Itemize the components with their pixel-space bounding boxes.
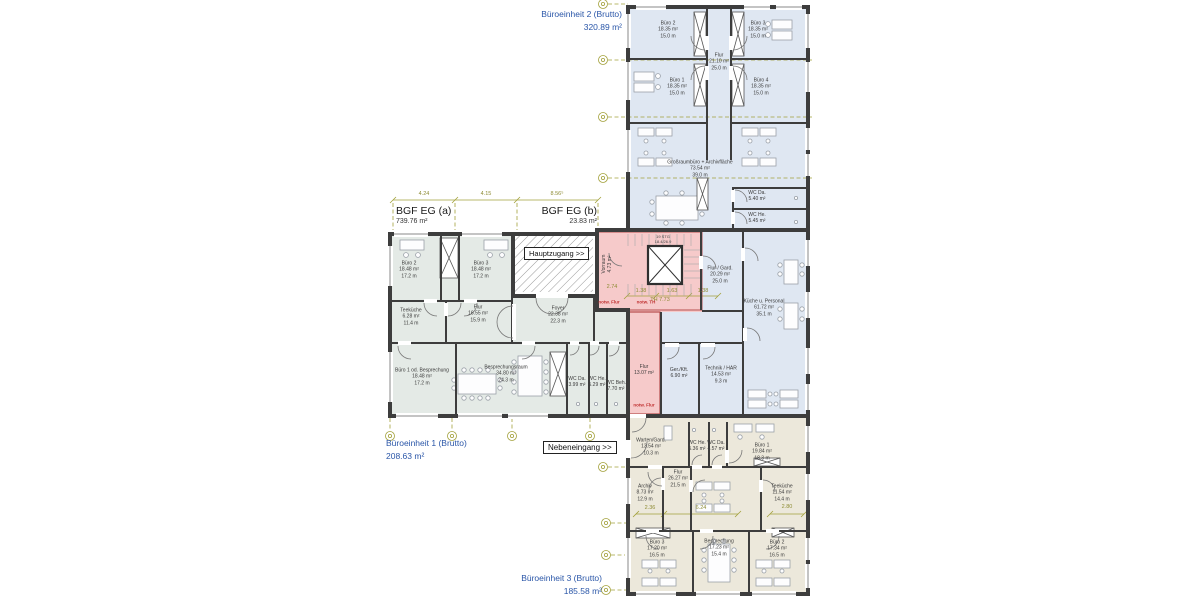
escape-route-label: notw. Flur bbox=[633, 403, 654, 408]
room-label: Flur26.27 m²21.5 m bbox=[668, 470, 688, 489]
dimension-label: 1.38 bbox=[698, 288, 709, 294]
entrance-hatch bbox=[515, 236, 593, 292]
room-label: WC He.5.36 m² bbox=[688, 440, 706, 453]
bgf-eg-a-label: BGF EG (a) 739.76 m² bbox=[396, 205, 451, 226]
room-label: WC Beh.7.70 m² bbox=[606, 380, 626, 393]
room-label: Büro 318.35 m²15.0 m bbox=[748, 21, 768, 40]
room-label: Büro 317.20 m²16.5 m bbox=[647, 540, 667, 559]
room-label: Teeküche6.28 m²11.4 m bbox=[400, 308, 421, 327]
stair-count-note: 19 STG 18.4/26.9 bbox=[655, 235, 672, 245]
room-label: Flur16.55 m²15.9 m bbox=[468, 305, 488, 324]
floor-plan-page: { "drawing": { "type": "architectural-fl… bbox=[0, 0, 1200, 600]
room-label: Büro 1 od. Besprechung18.48 m²17.2 m bbox=[395, 368, 449, 387]
dimension-label: 2.74 bbox=[607, 284, 618, 290]
room-label: Archiv8.73 m²12.9 m bbox=[637, 484, 654, 503]
room-label: Büro 119.84 m²18.3 m bbox=[752, 443, 772, 462]
unit2-label: Büroeinheit 2 (Brutto) 320.89 m² bbox=[541, 8, 622, 34]
room-label: Großraumbüro + Archivfläche73.54 m²39.0 … bbox=[667, 160, 732, 179]
room-label: WC Da.5.40 m² bbox=[748, 190, 766, 203]
room-label: Büro 218.48 m²17.2 m bbox=[399, 261, 419, 280]
room-label: Flur / Gard.20.29 m²25.0 m bbox=[707, 266, 732, 285]
dimension-label: 1.38 bbox=[636, 288, 647, 294]
room-label: Büro 418.35 m²15.0 m bbox=[751, 78, 771, 97]
dimension-label: 6.24 bbox=[696, 505, 707, 511]
escape-route-label: notw. TH bbox=[637, 300, 656, 305]
unit1-label: Büroeinheit 1 (Brutto) 208.63 m² bbox=[386, 437, 467, 463]
room-label: Büro 218.35 m²15.0 m bbox=[658, 21, 678, 40]
main-entrance-badge: Hauptzugang >> bbox=[524, 247, 589, 260]
dimension-label: 8.56⁵ bbox=[551, 191, 564, 197]
bgf-eg-b-label: BGF EG (b) 23.83 m² bbox=[542, 205, 597, 226]
room-label: Büro 318.48 m²17.2 m bbox=[471, 261, 491, 280]
room-label: WC Da.4.57 m² bbox=[707, 440, 725, 453]
room-label: Ger./Kft.6.90 m² bbox=[670, 367, 688, 380]
room-label: Küche u. Personal61.72 m²35.1 m bbox=[744, 299, 785, 318]
room-label: Foyer22.38 m²22.3 m bbox=[548, 306, 568, 325]
dimension-label: 1.63 bbox=[667, 288, 678, 294]
room-label: WC He.5.45 m² bbox=[748, 212, 766, 225]
escape-route-label: notw. Flur bbox=[598, 300, 619, 305]
room-label: WC He.5.29 m² bbox=[588, 376, 606, 389]
room-label: Technik / HAR14.53 m²9.3 m bbox=[705, 366, 737, 385]
room-label: Büro 118.35 m²15.0 m bbox=[667, 78, 687, 97]
room-label: Teeküche11.54 m²14.4 m bbox=[771, 484, 792, 503]
room-label: Büro 217.34 m²16.5 m bbox=[767, 540, 787, 559]
room-label: Besprechung17.23 m²15.4 m bbox=[704, 539, 733, 558]
dimension-label: 4.15 bbox=[481, 191, 492, 197]
room-label: Vorraum4.73 m² bbox=[601, 255, 614, 274]
room-label: Besprechungsraum34.80 m²24.3 m bbox=[484, 365, 527, 384]
unit3-label: Büroeinheit 3 (Brutto) 185.58 m² bbox=[521, 572, 602, 598]
dimension-label: 2.36 bbox=[645, 505, 656, 511]
dimension-label: 2.80 bbox=[782, 504, 793, 510]
room-label: Flur13.07 m² bbox=[634, 364, 654, 377]
elevator bbox=[648, 246, 682, 284]
dimension-label: 4.24 bbox=[419, 191, 430, 197]
side-entrance-badge: Nebeneingang >> bbox=[543, 441, 617, 454]
room-label: Warten/Gard.13.54 m²10.3 m bbox=[636, 438, 666, 457]
room-label: WC Da.3.99 m² bbox=[568, 376, 586, 389]
room-label: Flur21.10 m²25.0 m bbox=[709, 53, 729, 72]
